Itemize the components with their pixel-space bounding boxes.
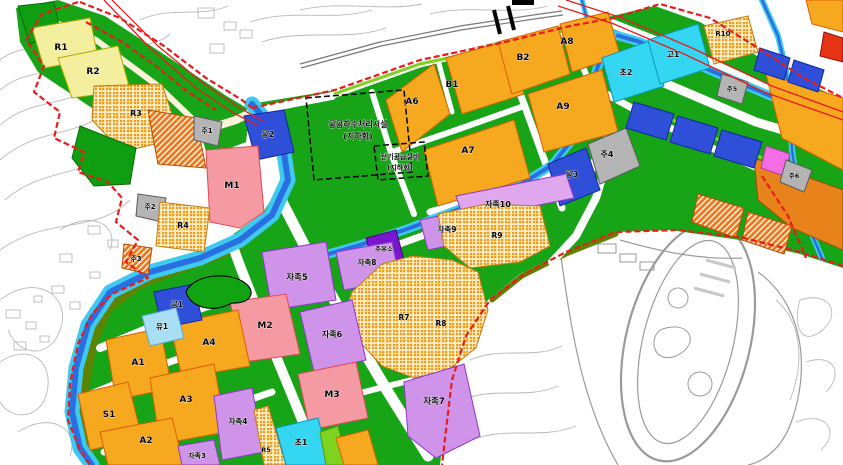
map-label: 자족5 <box>286 272 308 283</box>
map-label: R3 <box>130 109 142 118</box>
map-label: R9 <box>492 231 503 240</box>
map-label: B1 <box>445 80 458 90</box>
map-label: M1 <box>224 181 239 191</box>
map-label: 주6 <box>789 172 800 180</box>
map-label: B2 <box>516 53 529 63</box>
map-label: 초1 <box>295 438 308 447</box>
map-label: 자족7 <box>423 396 445 407</box>
map-label: A6 <box>405 97 418 107</box>
zoning-map: R1R2R3주1공2M1주2R4주3A6B1B2A8A9A7초2고1R10주5공… <box>0 0 843 465</box>
map-label: 자족4 <box>228 416 247 426</box>
map-label: 주2 <box>144 203 155 211</box>
map-label: (지하화) <box>387 163 413 172</box>
map-label: M3 <box>324 390 339 400</box>
map-label: 주4 <box>601 150 614 159</box>
map-label: R8 <box>436 319 447 328</box>
map-label: 자족3 <box>188 451 206 460</box>
map-label: 고1 <box>667 50 680 59</box>
map-label: 초2 <box>620 68 633 77</box>
map-label: M2 <box>257 321 272 331</box>
map-label: R10 <box>715 30 730 38</box>
railway-block <box>512 0 534 5</box>
map-label: 전기공급설비 <box>381 152 420 161</box>
zoning-map-viewport: R1R2R3주1공2M1주2R4주3A6B1B2A8A9A7초2고1R10주5공… <box>0 0 843 465</box>
map-label: (지하화) <box>343 131 372 141</box>
map-label: R7 <box>399 313 410 322</box>
map-label: A2 <box>139 436 152 446</box>
map-label: A7 <box>461 146 474 156</box>
map-label: 자족10 <box>485 199 511 209</box>
map-label: 자족9 <box>437 224 456 234</box>
map-label: A8 <box>560 37 573 47</box>
map-label: R5 <box>261 446 271 454</box>
map-label: 공2 <box>262 130 275 139</box>
map-label: 공3 <box>566 170 579 179</box>
map-label: R4 <box>177 221 189 230</box>
map-label: 주유소 <box>375 244 393 253</box>
map-label: S1 <box>103 410 116 420</box>
map-label: 주3 <box>130 255 141 263</box>
map-label: A9 <box>556 102 569 112</box>
map-label: 주5 <box>727 85 738 93</box>
map-label: A4 <box>202 338 215 348</box>
map-label: R1 <box>54 43 67 53</box>
map-label: 공1 <box>171 300 183 309</box>
map-label: 자족6 <box>322 329 343 339</box>
map-label: 유1 <box>156 322 168 331</box>
map-label: R2 <box>86 67 99 77</box>
map-label: 자족8 <box>357 257 376 267</box>
map-label: 주1 <box>201 127 212 135</box>
map-label: 공공하수처리시설 <box>329 119 388 129</box>
map-label: A1 <box>131 358 144 368</box>
map-label: A3 <box>179 395 192 405</box>
